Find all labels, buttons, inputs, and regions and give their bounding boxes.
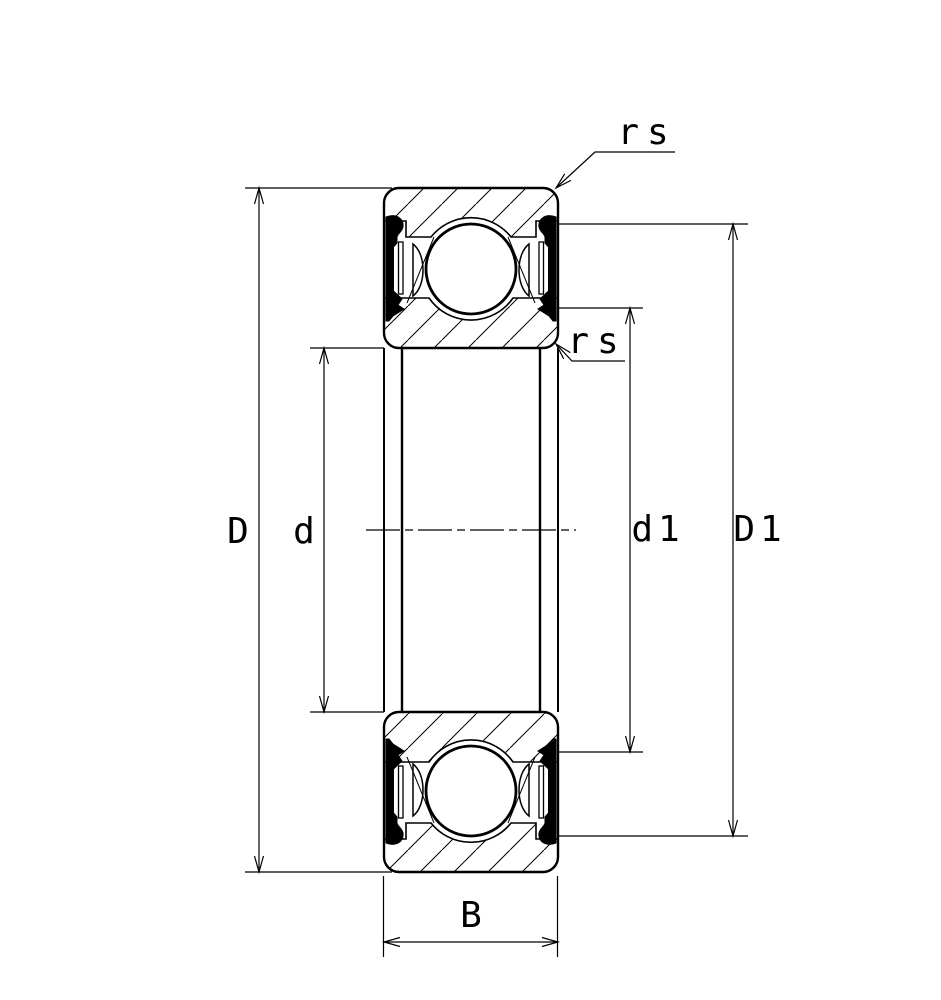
bearing-drawing-canvas: D d d1 D1 B rs rs — [0, 0, 941, 1000]
dimension-D1-label: D1 — [733, 509, 786, 550]
dimension-d-label: d — [293, 511, 315, 552]
dimension-B-label: B — [460, 895, 482, 936]
dimension-d1-label: d1 — [631, 509, 684, 550]
dimension-D-label: D — [227, 511, 249, 552]
chamfer-rs-outer-label: rs — [617, 112, 676, 153]
chamfer-rs-inner-label: rs — [567, 321, 626, 362]
bearing-diagram: D d d1 D1 B rs rs — [0, 0, 941, 1000]
